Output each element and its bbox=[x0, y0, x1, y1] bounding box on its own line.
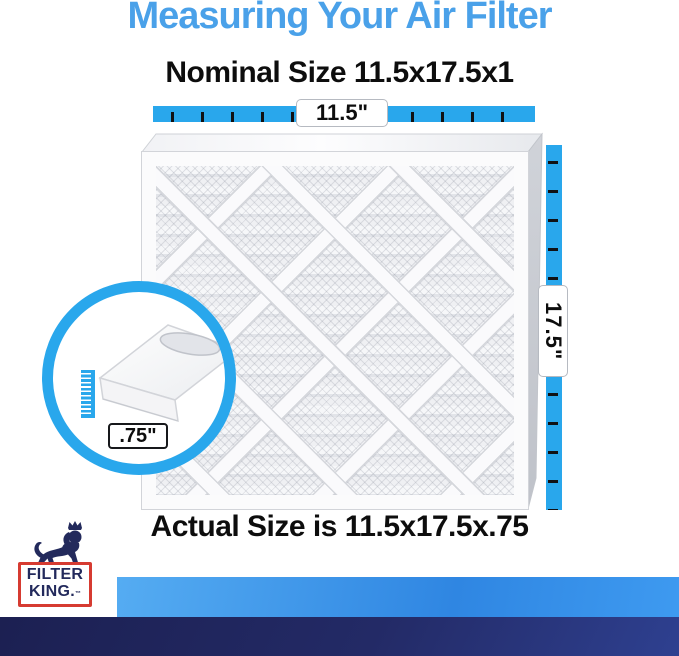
logo-wordmark: FILTER KING.™ bbox=[18, 562, 92, 607]
filter-top-face bbox=[142, 134, 542, 152]
footer-navy-bar bbox=[0, 617, 679, 656]
filter-king-logo: FILTER KING.™ bbox=[14, 518, 106, 612]
depth-ruler bbox=[81, 370, 95, 418]
logo-line2: KING.™ bbox=[29, 583, 81, 603]
height-measurement-label: 17.5" bbox=[538, 285, 568, 377]
trademark-symbol: ™ bbox=[75, 591, 81, 597]
width-ruler: 11.5" bbox=[153, 106, 535, 122]
width-measurement-label: 11.5" bbox=[296, 99, 388, 127]
page-title: Measuring Your Air Filter bbox=[0, 0, 679, 38]
zoom-callout-circle: .75" bbox=[42, 281, 236, 475]
lion-crown-icon bbox=[26, 520, 88, 566]
height-ruler: 17.5" bbox=[546, 145, 562, 510]
depth-measurement-label: .75" bbox=[108, 423, 168, 449]
air-filter-infographic: Measuring Your Air Filter Nominal Size 1… bbox=[0, 0, 679, 656]
nominal-size-text: Nominal Size 11.5x17.5x1 bbox=[0, 56, 679, 90]
logo-line1: FILTER bbox=[27, 566, 84, 583]
footer-blue-bar bbox=[117, 577, 679, 617]
